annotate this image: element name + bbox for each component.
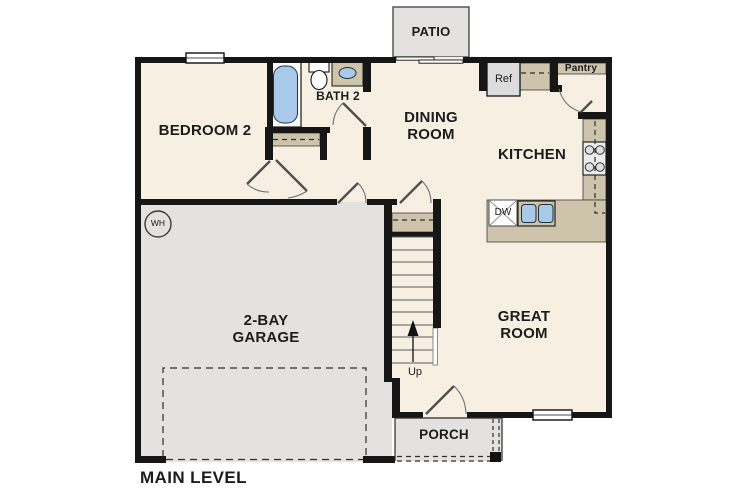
- stairs-up-label: Up: [398, 365, 432, 379]
- kitchen-label: KITCHEN: [490, 146, 574, 164]
- great-room-label: GREAT ROOM: [482, 303, 566, 349]
- stair-railing: [433, 328, 438, 365]
- pantry-label: Pantry: [554, 62, 608, 75]
- dishwasher-label: DW: [488, 200, 518, 226]
- floor-plan-drawing: [0, 0, 750, 500]
- bedroom2-label: BEDROOM 2: [143, 122, 267, 140]
- bath-sink-icon: [339, 68, 356, 79]
- toilet-icon: [311, 71, 327, 90]
- water-heater-label: WH: [144, 217, 172, 231]
- patio-label: PATIO: [393, 7, 469, 57]
- garage-label: 2-BAY GARAGE: [214, 307, 318, 353]
- kitchen-sink-basin-left: [522, 205, 537, 223]
- kitchen-sink-basin-right: [539, 205, 554, 223]
- stairs-closet-shelf: [392, 213, 435, 232]
- bath2-label: BATH 2: [306, 89, 370, 105]
- bathtub: [274, 66, 298, 123]
- patio-slider-panel: [419, 60, 463, 63]
- floor-plan: PATIO BEDROOM 2 BATH 2 DINING ROOM KITCH…: [0, 0, 750, 500]
- upper-counter: [520, 63, 550, 90]
- dining-room-label: DINING ROOM: [388, 106, 474, 148]
- main-level-title: MAIN LEVEL: [140, 467, 320, 489]
- porch-post: [490, 452, 501, 462]
- refrigerator-label: Ref: [487, 63, 520, 95]
- porch-label: PORCH: [397, 420, 491, 450]
